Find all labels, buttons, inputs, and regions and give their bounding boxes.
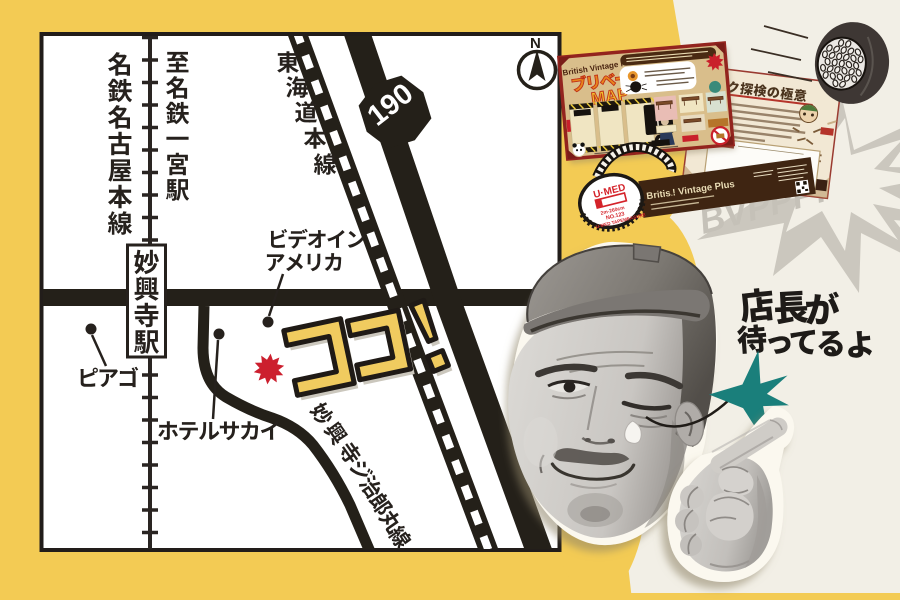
svg-text:N: N bbox=[530, 35, 541, 52]
